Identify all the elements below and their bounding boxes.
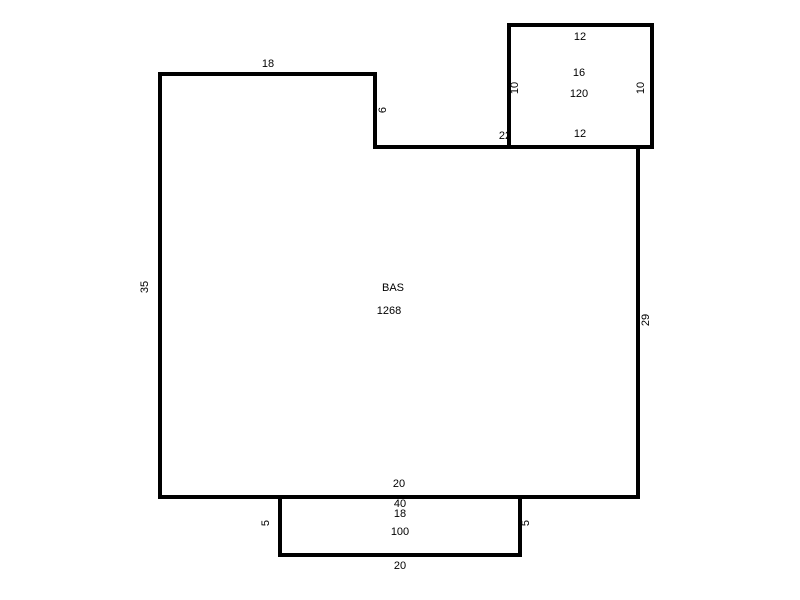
main-top-width-label: 18 bbox=[262, 58, 274, 70]
topright-right-height-label: 10 bbox=[635, 82, 647, 94]
main-notch-height-label: 6 bbox=[377, 107, 389, 113]
topright-area-label: 120 bbox=[570, 88, 588, 100]
bottom-area-label: 100 bbox=[391, 526, 409, 538]
main-room-name-label: BAS bbox=[382, 282, 404, 294]
main-room-area-label: 1268 bbox=[377, 305, 401, 317]
topright-bottom-width-label: 12 bbox=[574, 128, 586, 140]
main-right-height-label: 29 bbox=[640, 314, 652, 326]
floor-plan-canvas: 18 6 35 29 22 BAS 1268 20 12 16 120 12 1… bbox=[0, 0, 800, 600]
floor-plan-drawing: 18 6 35 29 22 BAS 1268 20 12 16 120 12 1… bbox=[0, 0, 800, 600]
topright-left-height-label: 10 bbox=[509, 82, 521, 94]
main-left-height-label: 35 bbox=[139, 281, 151, 293]
bottom-inner-dim-label: 18 bbox=[394, 508, 406, 520]
bottom-right-height-label: 5 bbox=[520, 520, 532, 526]
topright-dim-label: 16 bbox=[573, 67, 585, 79]
main-bottom-inner-width-label: 20 bbox=[393, 478, 405, 490]
junction-dim-label: 22 bbox=[499, 130, 511, 142]
topright-top-width-label: 12 bbox=[574, 31, 586, 43]
bottom-width-label: 20 bbox=[394, 560, 406, 572]
bottom-left-height-label: 5 bbox=[260, 520, 272, 526]
